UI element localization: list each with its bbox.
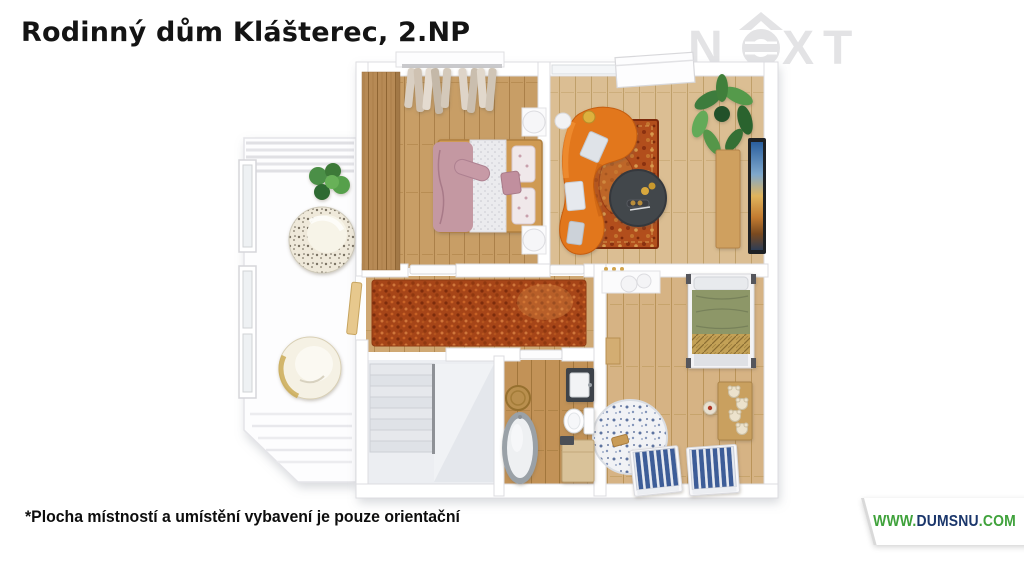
bathtub xyxy=(502,412,538,484)
floor-plan-page: Rodinný dům Klášterec, 2.NP N XT xyxy=(0,0,1024,575)
bedroom-door xyxy=(410,265,456,274)
balcony xyxy=(239,138,356,482)
duvet xyxy=(470,140,506,232)
disclaimer-footnote: *Plocha místností a umístění vybavení je… xyxy=(25,507,460,527)
lounge-chair-bottom xyxy=(279,337,341,399)
wall-tv xyxy=(748,138,766,254)
stair-steps xyxy=(370,364,434,452)
rose-pillow xyxy=(501,171,522,195)
kids-bed-left xyxy=(630,446,683,497)
gold-throw xyxy=(692,334,750,354)
dumsnu-logo: WWW.DUMSNU.COM xyxy=(874,513,1017,531)
sofa-cushion-mid xyxy=(565,181,586,211)
dumsnu-logo-banner: WWW.DUMSNU.COM xyxy=(861,498,1024,545)
dumsnu-logo-www: WWW. xyxy=(874,513,917,530)
dumsnu-logo-name: DUMSNU xyxy=(917,513,979,530)
kids-bed-right xyxy=(686,444,739,495)
nightstand-top xyxy=(522,108,546,136)
stool xyxy=(637,274,651,288)
bathroom-rug xyxy=(506,386,530,410)
bathroom-door xyxy=(520,350,562,359)
stool xyxy=(621,276,637,292)
table-lamp xyxy=(583,111,595,123)
balcony-window-bottom xyxy=(239,266,256,398)
laundry-cabinet xyxy=(560,436,594,482)
kids-room-door-mat xyxy=(606,338,620,364)
green-bed xyxy=(686,274,756,368)
wall-hooks xyxy=(604,267,624,271)
staircase xyxy=(366,360,496,484)
tv-sideboard xyxy=(716,150,740,248)
double-bed xyxy=(433,140,542,232)
sofa-cushion-low xyxy=(567,221,585,245)
red-shag-carpet xyxy=(372,280,586,346)
living-room-door xyxy=(550,265,584,274)
sink-vanity xyxy=(566,368,594,402)
green-bed-pillow xyxy=(694,277,748,290)
kids-desk xyxy=(602,271,660,293)
side-table xyxy=(555,113,571,129)
floor-plan-render xyxy=(0,0,1024,575)
stair-railing xyxy=(432,364,435,454)
dumsnu-logo-tld: .COM xyxy=(979,513,1016,530)
toilet xyxy=(564,408,594,434)
coffee-table xyxy=(610,170,666,226)
plush-toy xyxy=(704,402,717,415)
balcony-window-top xyxy=(239,160,256,252)
wardrobe xyxy=(362,72,400,270)
lounge-chair-top xyxy=(289,207,355,273)
nightstand-bottom xyxy=(522,226,546,254)
